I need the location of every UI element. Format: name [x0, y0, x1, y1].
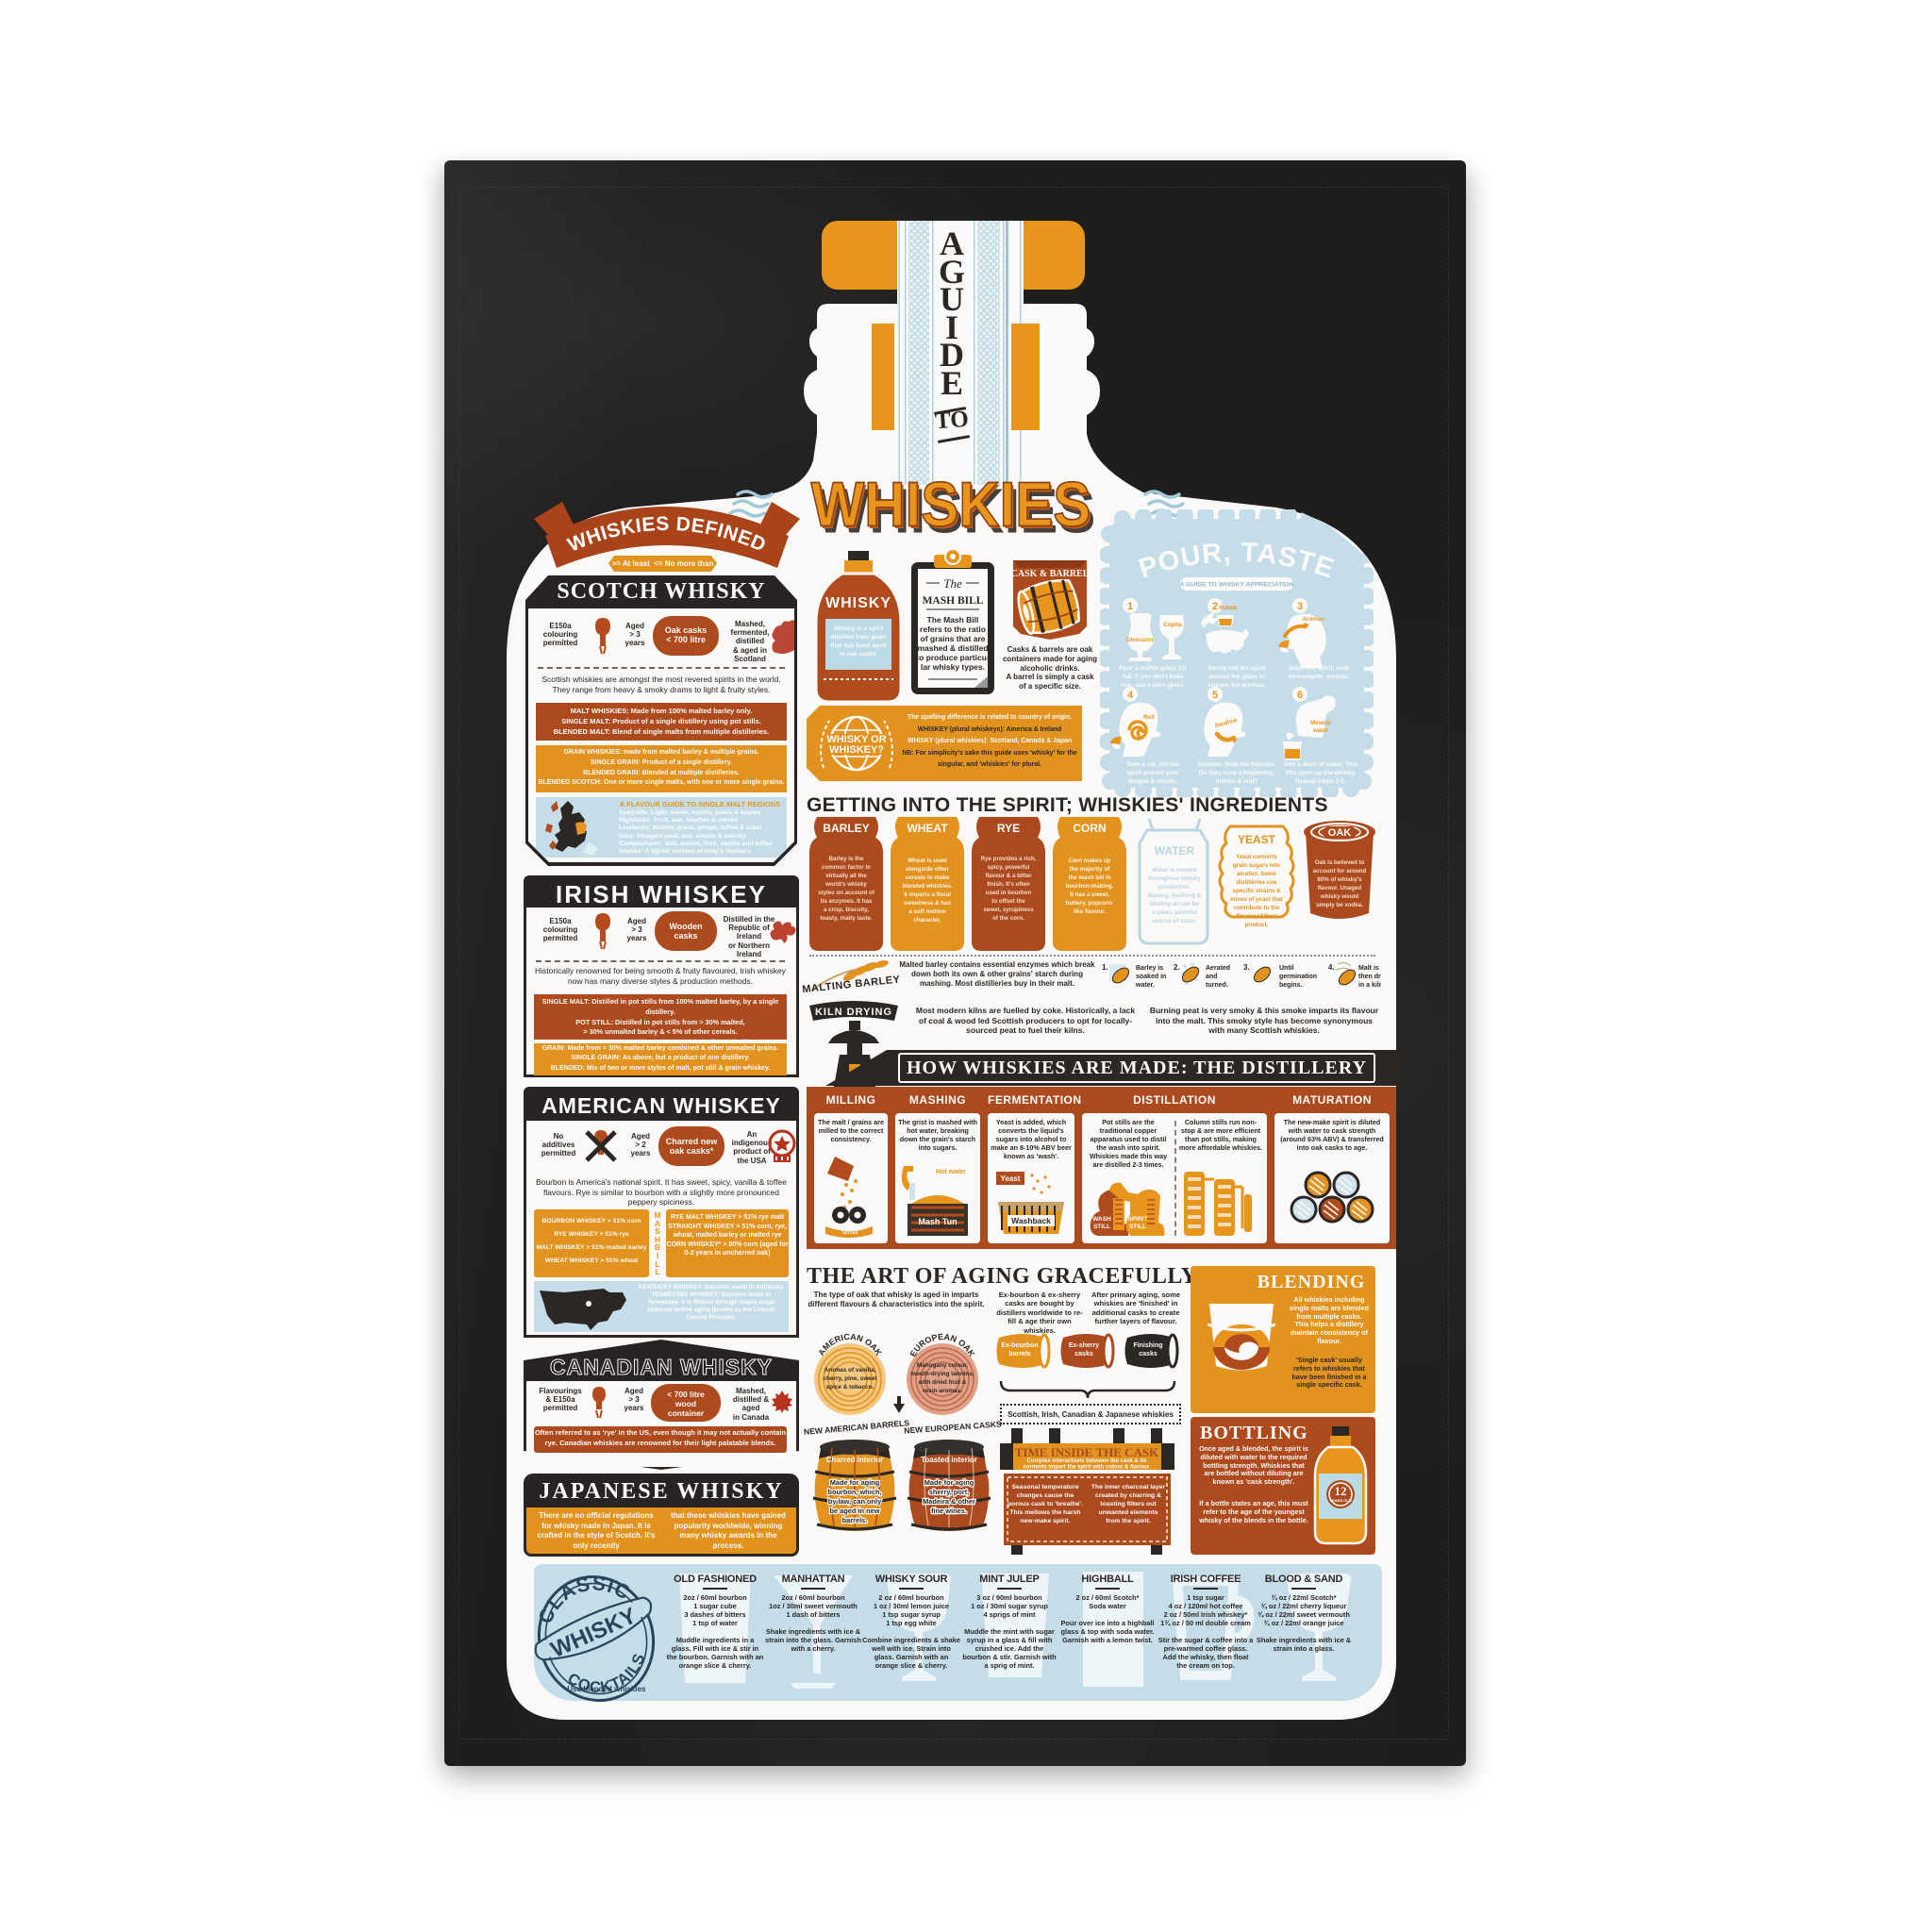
svg-text:used in bourbon: used in bourbon	[986, 890, 1032, 896]
svg-text:It imparts a floral: It imparts a floral	[904, 891, 951, 898]
svg-text:from the spirit.: from the spirit.	[1106, 1518, 1151, 1524]
svg-text:3.: 3.	[1243, 963, 1250, 972]
svg-text:Finishing: Finishing	[1133, 1342, 1162, 1349]
svg-text:of the corn.: of the corn.	[992, 915, 1024, 922]
svg-text:WHISKY: WHISKY	[825, 595, 891, 611]
svg-text:porous cask to 'breathe'.: porous cask to 'breathe'.	[1008, 1501, 1083, 1507]
svg-text:throughout whisky: throughout whisky	[1148, 875, 1201, 882]
svg-text:a crisp, biscuity,: a crisp, biscuity,	[824, 907, 869, 913]
svg-text:2.: 2.	[1174, 963, 1180, 972]
svg-text:an energetic aromas.: an energetic aromas.	[1288, 674, 1349, 680]
svg-text:virtually all the: virtually all the	[825, 873, 867, 879]
svg-text:buttery, popcorn-: buttery, popcorn-	[1066, 900, 1114, 907]
svg-text:Oak is believed to: Oak is believed to	[1315, 859, 1365, 866]
svg-text:distilled from grain: distilled from grain	[831, 634, 887, 641]
svg-text:to offset the: to offset the	[991, 898, 1025, 905]
svg-text:common factor in: common factor in	[822, 864, 871, 871]
svg-text:Made for aging: Made for aging	[830, 1478, 880, 1487]
svg-text:created by charring &: created by charring &	[1095, 1492, 1161, 1499]
svg-text:Swallow. Note the flavours.: Swallow. Note the flavours.	[1197, 761, 1276, 768]
svg-text:spicy, powerful: spicy, powerful	[988, 864, 1030, 871]
svg-text:Add a dash of water. This: Add a dash of water. This	[1284, 761, 1358, 768]
svg-text:account for around: account for around	[1313, 868, 1367, 874]
svg-text:specific strains &: specific strains &	[1232, 888, 1281, 894]
svg-text:world's whisky: world's whisky	[824, 881, 867, 888]
svg-text:CASK & BARREL: CASK & BARREL	[1011, 569, 1090, 579]
svg-text:the majority of: the majority of	[1070, 866, 1111, 873]
svg-text:SPIRIT: SPIRIT	[1128, 1216, 1148, 1223]
svg-text:Gently roll the spirit: Gently roll the spirit	[1207, 665, 1266, 672]
svg-text:4.: 4.	[1328, 963, 1335, 972]
svg-text:fine wines.: fine wines.	[931, 1507, 967, 1515]
svg-text:Aromas: Aromas	[1302, 616, 1324, 623]
svg-text:bourbon-making.: bourbon-making.	[1066, 883, 1114, 890]
svg-text:CORN: CORN	[1073, 822, 1106, 835]
svg-text:OAK: OAK	[1328, 827, 1352, 839]
svg-text:STILL: STILL	[1129, 1224, 1146, 1230]
svg-text:Ex-sherry: Ex-sherry	[1069, 1342, 1099, 1349]
svg-text:Seasonal temperature: Seasonal temperature	[1011, 1484, 1078, 1491]
svg-text:casks: casks	[1139, 1351, 1158, 1357]
svg-text:changes cause the: changes cause the	[1017, 1492, 1074, 1499]
svg-text:unwanted elements: unwanted elements	[1098, 1509, 1158, 1516]
svg-text:bourbon, which,: bourbon, which,	[827, 1488, 881, 1496]
svg-text:middle & end?: middle & end?	[1216, 778, 1258, 785]
svg-text:Smell the spirit, note: Smell the spirit, note	[1289, 665, 1349, 672]
svg-text:refers to the ratio: refers to the ratio	[920, 625, 986, 634]
svg-text:Yeast: Yeast	[1001, 1174, 1021, 1183]
svg-text:flavour of their: flavour of their	[1236, 913, 1277, 920]
svg-text:Toasted interior: Toasted interior	[921, 1456, 977, 1464]
svg-text:source of water.: source of water.	[1152, 918, 1196, 924]
svg-text:spirit around your: spirit around your	[1126, 770, 1179, 776]
svg-text:STILL: STILL	[1093, 1224, 1110, 1230]
svg-text:MASH BILL: MASH BILL	[923, 595, 984, 607]
svg-text:spice & tobacco.: spice & tobacco.	[826, 1384, 874, 1391]
svg-text:Take a sip, roll the: Take a sip, roll the	[1126, 761, 1180, 768]
svg-text:character.: character.	[913, 917, 941, 924]
svg-text:in oak casks.: in oak casks.	[840, 651, 878, 658]
svg-text:Mahogany colour,: Mahogany colour,	[917, 1362, 969, 1369]
svg-text:product.: product.	[1245, 922, 1269, 928]
svg-text:like flavour.: like flavour.	[1074, 908, 1106, 915]
svg-text:flavour & a bitter: flavour & a bitter	[985, 873, 1032, 879]
svg-text:contents impart the spirit wit: contents impart the spirit with colour &…	[1024, 1465, 1151, 1471]
svg-text:barrels.: barrels.	[842, 1516, 868, 1524]
svg-text:RYE: RYE	[997, 822, 1020, 835]
svg-text:toasty, malty taste.: toasty, malty taste.	[820, 915, 873, 922]
svg-text:whisky would: whisky would	[1320, 893, 1358, 900]
svg-text:It has a sweet,: It has a sweet,	[1070, 891, 1109, 898]
svg-text:The inner charcoal layer: The inner charcoal layer	[1091, 1484, 1166, 1491]
svg-text:cereals to make: cereals to make	[906, 874, 950, 881]
svg-text:Pour a snifter glass 1/3: Pour a snifter glass 1/3	[1119, 665, 1187, 672]
svg-text:6: 6	[1297, 690, 1303, 701]
svg-text:Hot water: Hot water	[936, 1169, 966, 1175]
svg-text:tongue & mouth.: tongue & mouth.	[1128, 778, 1177, 785]
svg-text:new-make spirit.: new-make spirit.	[1020, 1518, 1070, 1524]
svg-text:grain sugars into: grain sugars into	[1233, 862, 1280, 869]
svg-text:alcohol. Some: alcohol. Some	[1237, 871, 1277, 877]
svg-text:contribute to the: contribute to the	[1234, 905, 1280, 911]
svg-text:WHEAT: WHEAT	[907, 822, 948, 835]
svg-text:3: 3	[1297, 601, 1303, 612]
svg-text:Aeratedandturned.: Aeratedandturned.	[1206, 965, 1230, 989]
svg-text:sherry, port,: sherry, port,	[929, 1488, 970, 1496]
svg-text:a soft mellow: a soft mellow	[908, 908, 945, 915]
svg-text:around the glass to: around the glass to	[1208, 674, 1265, 680]
svg-text:resin aromas.: resin aromas.	[923, 1388, 962, 1394]
svg-text:by law, can only: by law, can only	[828, 1497, 882, 1506]
svg-text:sweetness & has: sweetness & has	[904, 900, 951, 907]
svg-text:Corn makes up: Corn makes up	[1069, 858, 1111, 864]
svg-text:distilleries use: distilleries use	[1237, 879, 1278, 886]
svg-text:one, use a wine glass.: one, use a wine glass.	[1121, 682, 1185, 689]
svg-text:Malt isthen driedin a kiln.: Malt isthen driedin a kiln.	[1358, 965, 1381, 989]
svg-text:Rye provides a rich,: Rye provides a rich,	[981, 856, 1037, 862]
svg-text:Mash Tun: Mash Tun	[918, 1217, 957, 1226]
svg-text:Repeat steps 3-5.: Repeat steps 3-5.	[1295, 778, 1346, 785]
svg-text:Barley issoaked inwater.: Barley issoaked inwater.	[1135, 965, 1166, 989]
svg-text:Madeira & other: Madeira & other	[923, 1497, 975, 1506]
svg-text:Do they have a beginning,: Do they have a beginning,	[1199, 770, 1275, 776]
svg-text:mouth-drying tannins,: mouth-drying tannins,	[910, 1371, 974, 1377]
svg-text:WHISKEY?: WHISKEY?	[829, 744, 884, 756]
svg-text:4: 4	[1127, 690, 1134, 701]
svg-text:cherry, pine, sweet: cherry, pine, sweet	[823, 1375, 877, 1382]
svg-text:casks: casks	[1074, 1351, 1093, 1357]
svg-text:a clean, plentiful: a clean, plentiful	[1152, 909, 1198, 916]
svg-text:barrels: barrels	[1008, 1351, 1030, 1357]
svg-text:YEAST: YEAST	[1238, 833, 1276, 846]
svg-text:Roll: Roll	[1143, 714, 1155, 721]
svg-text:Copita: Copita	[1163, 622, 1182, 628]
svg-text:release the aromas.: release the aromas.	[1208, 682, 1266, 689]
svg-text:Mineral: Mineral	[1310, 720, 1331, 726]
svg-text:Washback: Washback	[1011, 1216, 1051, 1225]
svg-text:its enzymes. It has: its enzymes. It has	[821, 898, 873, 905]
svg-text:of grains that are: of grains that are	[921, 634, 986, 643]
svg-text:1: 1	[1127, 601, 1133, 612]
svg-text:the mash bill in: the mash bill in	[1068, 874, 1110, 881]
svg-text:Ex-bourbon: Ex-bourbon	[1001, 1342, 1038, 1349]
svg-text:Glencairn: Glencairn	[1126, 637, 1154, 643]
svg-text:The: The	[943, 576, 962, 591]
svg-text:that has been aged: that has been aged	[831, 642, 887, 649]
svg-text:sweet, syrupiness: sweet, syrupiness	[983, 907, 1034, 913]
svg-text:mixes of yeast that: mixes of yeast that	[1230, 896, 1283, 903]
svg-text:full. If you don't have: full. If you don't have	[1123, 674, 1184, 680]
svg-text:finish. It's often: finish. It's often	[987, 881, 1030, 888]
svg-text:simply be vodka.: simply be vodka.	[1316, 902, 1363, 908]
svg-text:Aromas of vanilla,: Aromas of vanilla,	[824, 1367, 875, 1374]
svg-text:This mellows the harsh: This mellows the harsh	[1009, 1509, 1080, 1516]
svg-text:YEARS OLD: YEARS OLD	[1329, 1498, 1351, 1503]
svg-text:Making, mashing &: Making, mashing &	[1148, 892, 1202, 899]
svg-text:Made for aging: Made for aging	[924, 1478, 974, 1487]
svg-text:styles on account of: styles on account of	[818, 890, 875, 896]
svg-text:KILN DRYING: KILN DRYING	[815, 1007, 892, 1018]
svg-text:Water is needed: Water is needed	[1152, 867, 1196, 874]
svg-text:to produce particu-: to produce particu-	[916, 653, 990, 662]
svg-text:BARLEY: BARLEY	[823, 822, 869, 835]
svg-text:WASH: WASH	[1092, 1216, 1111, 1223]
svg-text:Rotate: Rotate	[1219, 605, 1238, 611]
svg-text:A GUIDE TO WHISKY APPRECIATION: A GUIDE TO WHISKY APPRECIATION	[1180, 582, 1294, 589]
svg-text:lar whisky types.: lar whisky types.	[921, 662, 985, 672]
svg-text:lifts open up the whisky.: lifts open up the whisky.	[1286, 770, 1357, 776]
svg-text:mashed & distilled: mashed & distilled	[917, 643, 988, 653]
svg-text:Complex interactions between t: Complex interactions between the cask & …	[1026, 1458, 1147, 1464]
svg-text:5: 5	[1212, 690, 1218, 701]
svg-text:alongside other: alongside other	[906, 866, 950, 873]
svg-text:flavour. Unaged: flavour. Unaged	[1318, 885, 1362, 891]
svg-text:TIME INSIDE THE CASK: TIME INSIDE THE CASK	[1015, 1445, 1159, 1459]
svg-text:Wheat is used: Wheat is used	[908, 858, 947, 864]
svg-text:80% of whisky's: 80% of whisky's	[1317, 876, 1362, 883]
svg-text:2: 2	[1212, 601, 1218, 612]
svg-text:production.: production.	[1158, 884, 1191, 891]
svg-text:be aged in new: be aged in new	[830, 1507, 880, 1515]
svg-text:The Mash Bill: The Mash Bill	[927, 615, 979, 625]
svg-text:12: 12	[1335, 1484, 1347, 1498]
svg-text:Barley is the: Barley is the	[829, 856, 864, 862]
svg-text:toasting filters out: toasting filters out	[1100, 1501, 1157, 1507]
svg-text:1.: 1.	[1102, 963, 1108, 972]
svg-text:Charred interior: Charred interior	[826, 1456, 883, 1464]
svg-text:Whisky is a spirit: Whisky is a spirit	[833, 625, 884, 632]
svg-text:blended whiskies.: blended whiskies.	[903, 883, 953, 890]
svg-text:WATER: WATER	[1155, 844, 1195, 858]
svg-text:Untilgerminationbegins.: Untilgerminationbegins.	[1279, 965, 1317, 989]
svg-text:'Grist': 'Grist'	[841, 1229, 859, 1236]
svg-text:Yeast converts: Yeast converts	[1236, 854, 1277, 860]
svg-text:with dried fruit &: with dried fruit &	[918, 1379, 967, 1386]
svg-text:diluting all call for: diluting all call for	[1150, 901, 1201, 908]
svg-text:water: water	[1312, 727, 1329, 734]
